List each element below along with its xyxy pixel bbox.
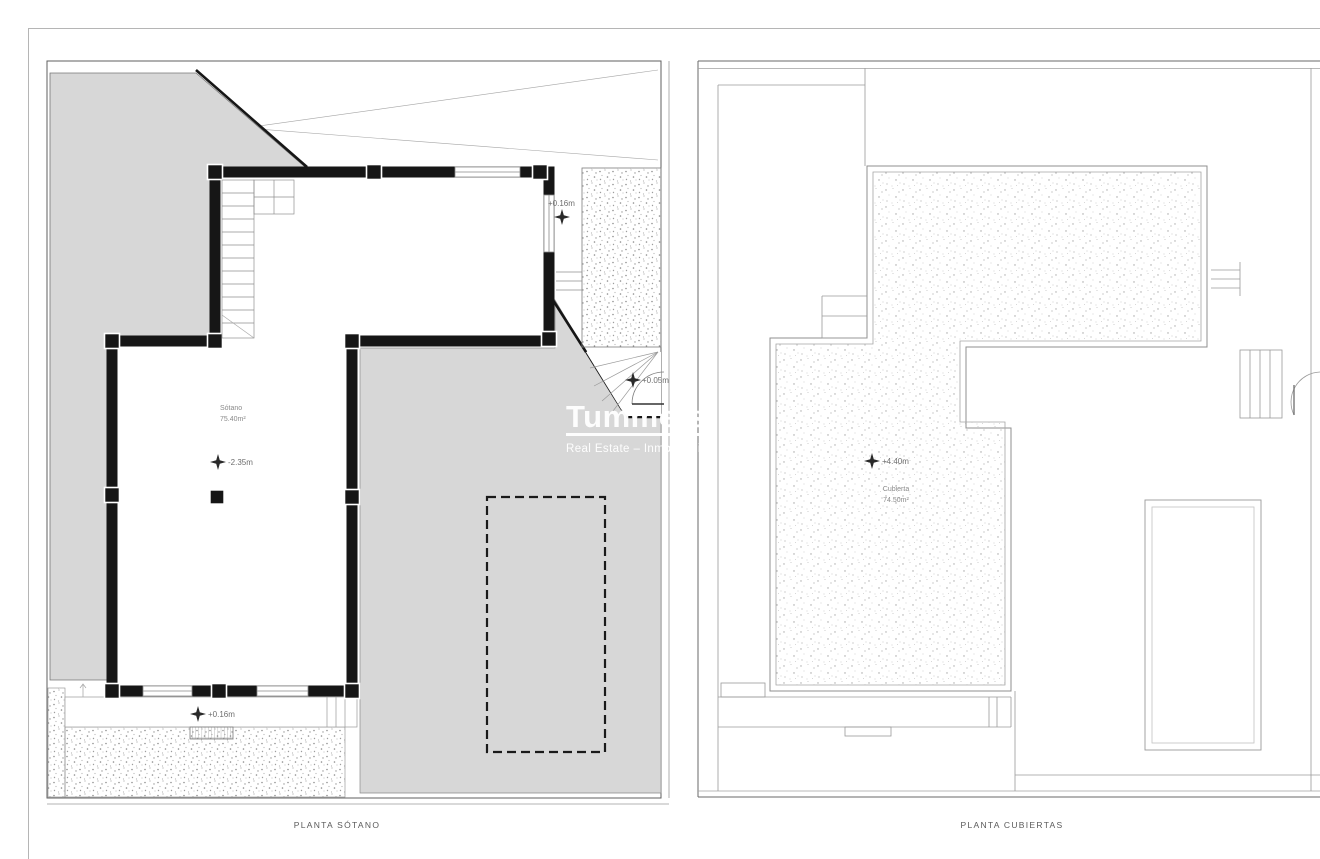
lower-roof-terrace [1015,500,1320,791]
basement-plan-caption: PLANTA SÓTANO [294,820,381,830]
roof-area [770,166,1207,691]
roof-door-swing-arc [1291,372,1320,415]
roof-outline-inner [776,172,1201,685]
roof-east-stair-flight [1240,350,1320,418]
roof-plan-caption: PLANTA CUBIERTAS [961,820,1064,830]
roof-plan-drawing: +4.40m Cubierta 74.50m² [0,0,1320,859]
roof-west-steps [822,296,867,338]
roof-label: Cubierta [883,486,910,493]
drawing-sheet: Sótano 75.40m² -2.35m +0.16m +0.05m +0.1… [0,0,1320,859]
roof-east-upper-steps [1211,262,1240,296]
roof-level-label: +4.40m [882,457,909,466]
roof-area-label: 74.50m² [883,497,909,504]
